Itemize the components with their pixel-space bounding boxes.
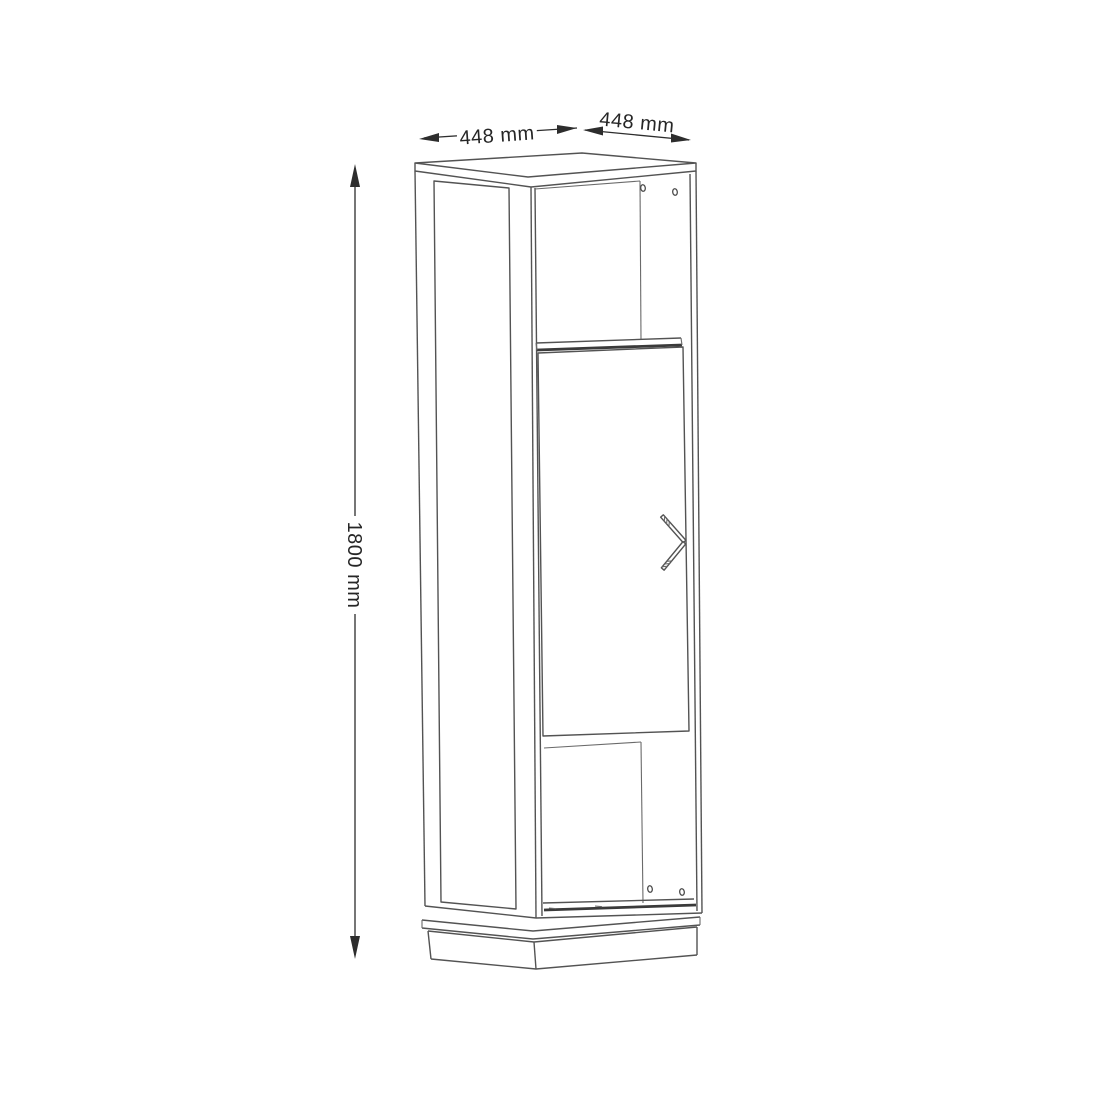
shelf-top-edge: [536, 338, 681, 343]
side-panel-inset: [434, 181, 516, 909]
dowel-tick: [595, 906, 602, 907]
front-corner-edge: [531, 187, 536, 918]
base-left-edge: [428, 931, 431, 959]
base-corner-edge: [534, 942, 536, 969]
arrowhead-up-icon: [350, 164, 360, 187]
height-dimension-label: 1800 mm: [343, 522, 365, 609]
width-dimension-label: 448 mm: [459, 122, 536, 149]
lower-interior-top-line: [544, 742, 641, 748]
cabinet-body: [415, 153, 702, 969]
base-bottom-edge: [431, 955, 697, 969]
arrowhead-right-icon: [557, 125, 577, 134]
left-outer-edge: [415, 171, 425, 906]
shelf-pin-hole: [640, 184, 645, 191]
plinth-band-lower: [422, 925, 700, 939]
dowel-tick: [549, 908, 556, 909]
base-pedestal: [428, 927, 697, 969]
cabinet-top-panel: [415, 153, 696, 187]
upper-back-panel-seam: [640, 181, 641, 340]
technical-drawing-canvas: 1800 mm 448 mm 448 mm: [0, 0, 1100, 1100]
bottom-shelf-front-edge: [544, 905, 696, 910]
dimension-depth: 448 mm: [583, 108, 691, 142]
bottom-shelf: [543, 899, 696, 910]
arrowhead-left-icon: [419, 133, 439, 142]
right-inner-stile-edge: [690, 174, 697, 911]
lower-back-panel-seam: [641, 742, 643, 903]
right-outer-edge: [696, 171, 702, 913]
dimension-height: 1800 mm: [343, 164, 365, 959]
top-face-outline: [415, 153, 696, 177]
upper-open-compartment: [535, 181, 678, 340]
lower-open-compartment: [544, 742, 685, 903]
bottom-shelf-top-edge: [543, 899, 694, 903]
depth-dimension-label: 448 mm: [598, 108, 675, 137]
side-bottom-edge: [425, 906, 536, 918]
shelf-pin-hole: [679, 888, 684, 895]
door-panel: [538, 347, 689, 736]
dimension-width: 448 mm: [419, 121, 577, 150]
front-bottom-edge: [536, 913, 702, 918]
arrowhead-right-icon: [671, 134, 691, 143]
shelf-pin-hole: [647, 885, 652, 892]
plinth-recess-band: [422, 917, 700, 939]
shelf-pin-hole: [672, 188, 677, 195]
arrowhead-down-icon: [350, 936, 360, 959]
cabinet-line-drawing: 1800 mm 448 mm 448 mm: [0, 0, 1100, 1100]
